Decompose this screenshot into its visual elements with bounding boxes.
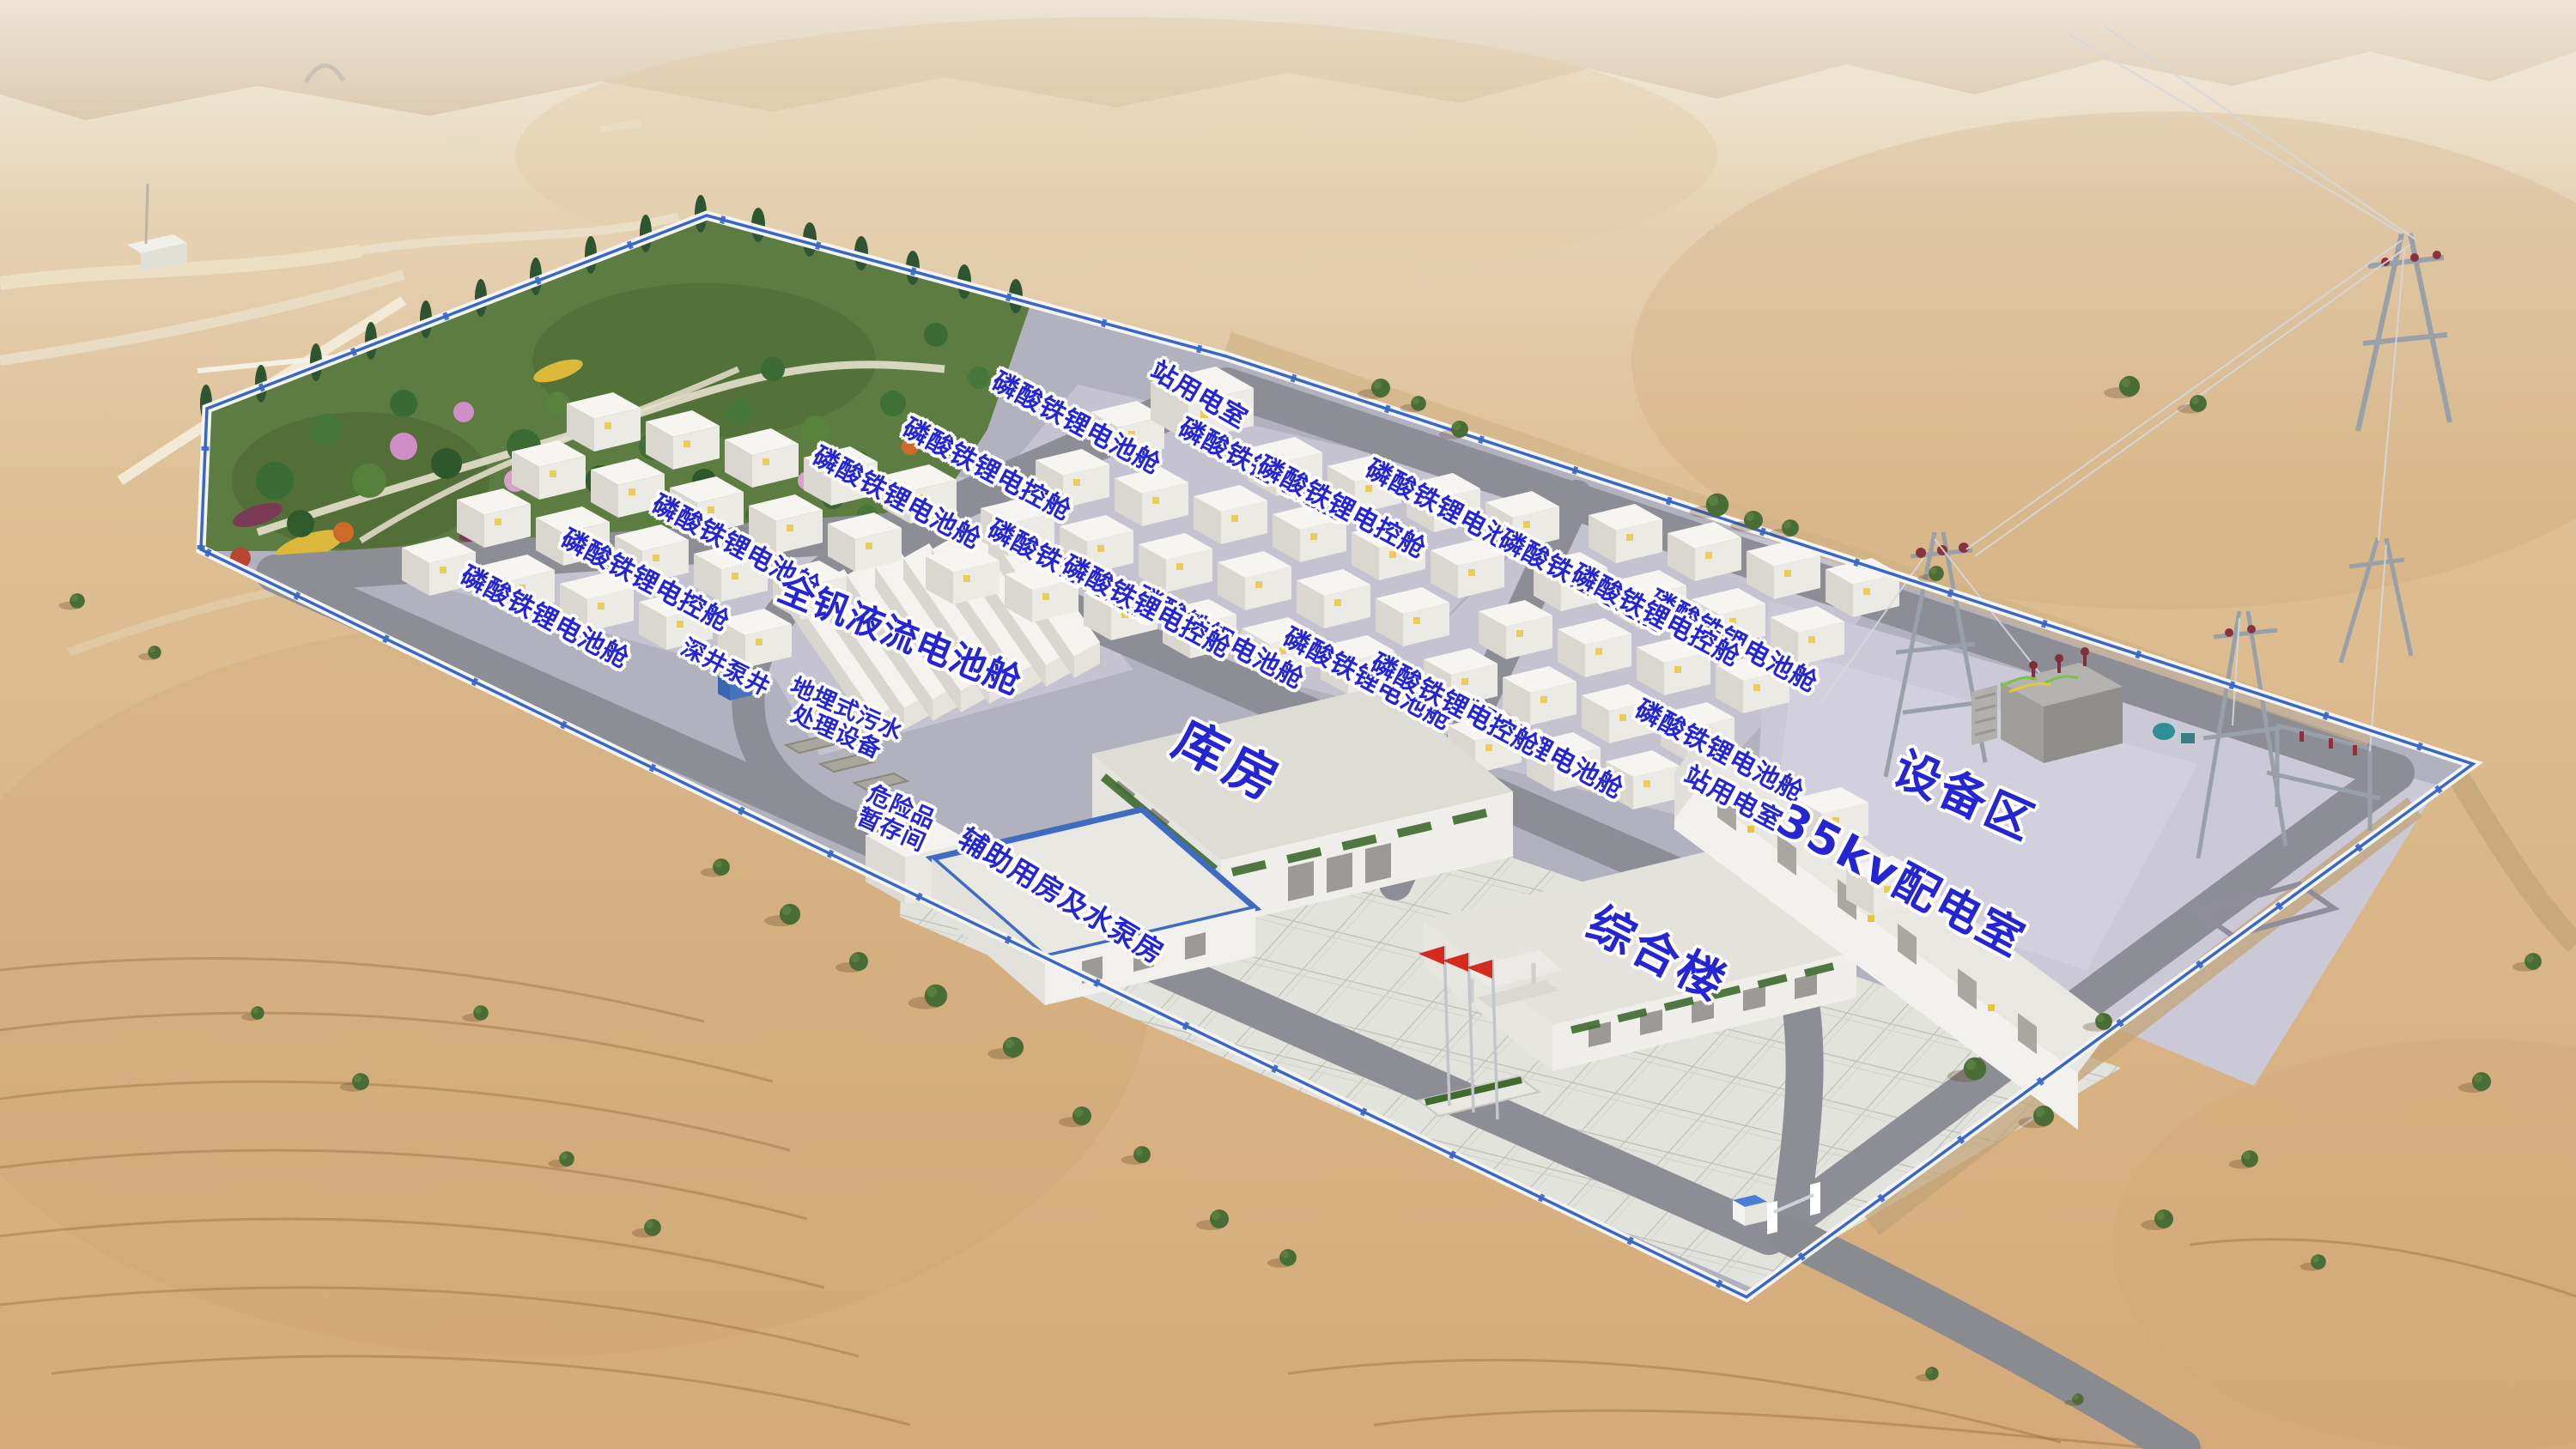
aerial-site-rendering: 磷酸铁锂电池舱 磷酸铁锂电池舱 磷酸铁锂电池舱 磷酸铁锂电池舱 磷酸铁锂电池舱 …	[0, 0, 2576, 1449]
scene-canvas	[0, 0, 2576, 1449]
